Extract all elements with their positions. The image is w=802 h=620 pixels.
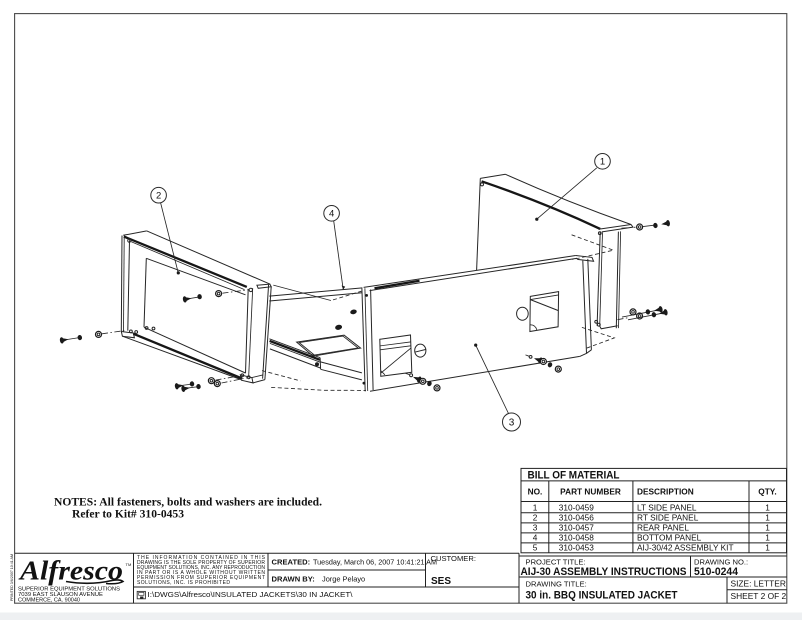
svg-text:Tuesday, March 06, 2007 10:41:: Tuesday, March 06, 2007 10:41:21 AM [313,559,437,567]
svg-text:PART NUMBER: PART NUMBER [560,487,621,497]
svg-text:DESCRIPTION: DESCRIPTION [637,487,694,497]
svg-text:310-0456: 310-0456 [559,513,594,523]
svg-text:1: 1 [765,543,770,553]
svg-text:310-0458: 310-0458 [559,533,594,543]
svg-text:310-0453: 310-0453 [559,543,594,553]
svg-text:AIJ-30/42 ASSEMBLY KIT: AIJ-30/42 ASSEMBLY KIT [637,543,734,553]
svg-text:1: 1 [765,533,770,543]
svg-text:4: 4 [329,209,334,220]
svg-text:PRINTED 3/6/2007 10:41 AM: PRINTED 3/6/2007 10:41 AM [10,554,14,601]
svg-text:310-0459: 310-0459 [559,502,594,512]
svg-text:TM: TM [126,562,132,567]
svg-text:1: 1 [600,157,605,168]
svg-text:3: 3 [533,523,538,533]
svg-text:RT SIDE PANEL: RT SIDE PANEL [637,513,699,523]
svg-text:REAR PANEL: REAR PANEL [637,523,689,533]
svg-text:510-0244: 510-0244 [694,566,739,578]
svg-text:2: 2 [156,191,161,202]
svg-text:4: 4 [533,533,538,543]
svg-text:NO.: NO. [528,487,543,497]
svg-text:BILL OF MATERIAL: BILL OF MATERIAL [528,469,620,481]
svg-text:CREATED:: CREATED: [272,558,311,567]
svg-text:5: 5 [533,543,538,553]
svg-text:I:\DWGS\Alfresco\INSULATED JAC: I:\DWGS\Alfresco\INSULATED JACKETS\30 IN… [148,590,354,599]
svg-text:QTY.: QTY. [758,487,776,497]
svg-text:SHEET 2 OF 2: SHEET 2 OF 2 [731,591,787,601]
svg-text:1: 1 [765,513,770,523]
svg-text:3: 3 [509,418,515,429]
svg-text:310-0457: 310-0457 [559,523,594,533]
svg-text:LT SIDE PANEL: LT SIDE PANEL [637,502,697,512]
svg-text:DRAWING TITLE:: DRAWING TITLE: [526,580,587,589]
svg-text:COMMERCE, CA. 90040: COMMERCE, CA. 90040 [18,598,81,604]
svg-text:SES: SES [431,576,451,587]
svg-text:CUSTOMER:: CUSTOMER: [431,554,476,563]
svg-text:SIZE: LETTER: SIZE: LETTER [731,579,786,589]
svg-text:SOLUTIONS, INC. IS PROHIBITED: SOLUTIONS, INC. IS PROHIBITED [137,580,230,586]
svg-text:1: 1 [765,502,770,512]
svg-text:1: 1 [533,502,538,512]
svg-text:Jorge Pelayo: Jorge Pelayo [322,575,365,584]
svg-text:30 in. BBQ INSULATED JACKET: 30 in. BBQ INSULATED JACKET [526,589,678,601]
svg-text:AIJ-30 ASSEMBLY INSTRUCTIONS: AIJ-30 ASSEMBLY INSTRUCTIONS [521,566,687,578]
svg-text:DRAWN BY:: DRAWN BY: [272,575,315,584]
svg-text:Refer to Kit# 310-0453: Refer to Kit# 310-0453 [72,508,184,521]
svg-text:1: 1 [765,523,770,533]
svg-text:BOTTOM PANEL: BOTTOM PANEL [637,533,702,543]
svg-text:2: 2 [533,513,538,523]
